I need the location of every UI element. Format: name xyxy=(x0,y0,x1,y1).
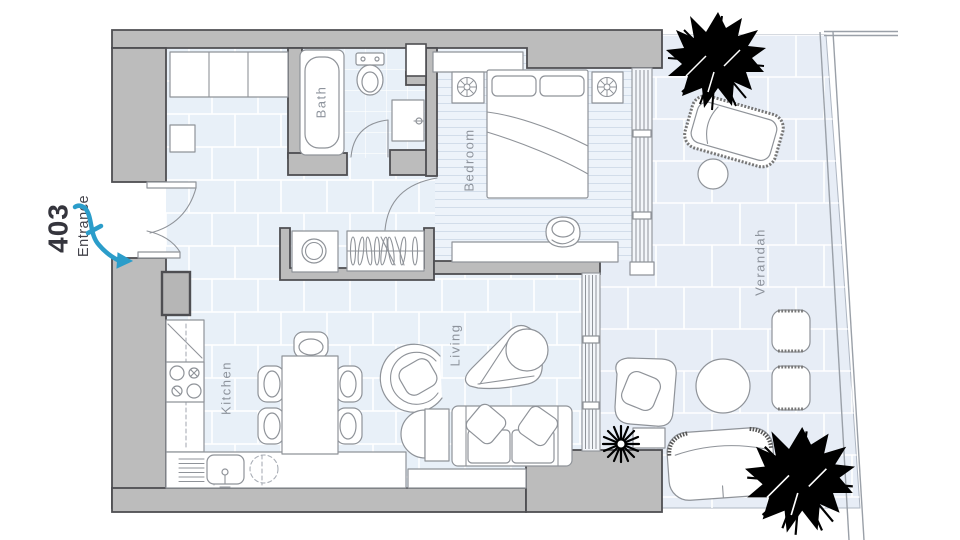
kitchen-sink xyxy=(207,455,244,487)
dining-table xyxy=(282,356,338,454)
wall-bottom xyxy=(112,488,526,512)
stool xyxy=(772,310,810,352)
floor-plan-drawing: Bath Bedroom Kitchen Living Verandah 403… xyxy=(0,0,960,540)
hall-cabinet xyxy=(170,125,195,152)
bedroom-chair xyxy=(546,217,580,247)
sliding-door-living xyxy=(582,273,600,451)
living-label: Living xyxy=(447,324,462,367)
washing-machine xyxy=(292,231,338,272)
wardrobe-hangers xyxy=(347,231,424,271)
wall-left-lower xyxy=(112,258,166,508)
round-side-table xyxy=(698,159,728,189)
bedroom-label: Bedroom xyxy=(461,128,476,191)
bed xyxy=(487,70,588,198)
dining-chair xyxy=(294,332,328,358)
dresser xyxy=(452,242,618,262)
tv-console xyxy=(408,469,526,488)
stove xyxy=(166,362,204,402)
sofa xyxy=(452,401,572,466)
sliding-door-bedroom xyxy=(630,68,654,275)
bath-label: Bath xyxy=(313,86,328,119)
wall-shaft-column xyxy=(162,272,190,315)
coffee-table xyxy=(696,359,750,413)
plant-flower-icon xyxy=(458,78,477,97)
dining-chair xyxy=(258,366,284,402)
plant-flower-icon xyxy=(598,78,617,97)
toilet xyxy=(356,53,384,95)
wall-bath-bottom-left xyxy=(288,153,347,175)
hall-closet xyxy=(170,52,288,97)
armchair xyxy=(380,344,442,412)
nightstand-right xyxy=(592,72,623,103)
kitchen-label: Kitchen xyxy=(218,361,233,415)
wall-duct-opening xyxy=(406,44,426,76)
entrance-callout: 403 Entrance xyxy=(42,195,132,268)
dining-chair xyxy=(336,408,362,444)
beanbag-chair xyxy=(615,358,676,426)
dining-chair xyxy=(336,366,362,402)
wall-left-upper xyxy=(112,48,166,182)
verandah-label: Verandah xyxy=(752,228,767,296)
floor-plan-page: Bath Bedroom Kitchen Living Verandah 403… xyxy=(0,0,960,540)
spiky-plant-icon xyxy=(603,426,639,462)
vanity-sink xyxy=(392,100,424,141)
stool xyxy=(772,366,810,410)
unit-number-label: 403 xyxy=(42,203,73,253)
nightstand-left xyxy=(452,72,484,103)
bedroom-ledge xyxy=(433,52,523,72)
dining-chair xyxy=(258,408,284,444)
wall-living-top xyxy=(434,261,600,274)
